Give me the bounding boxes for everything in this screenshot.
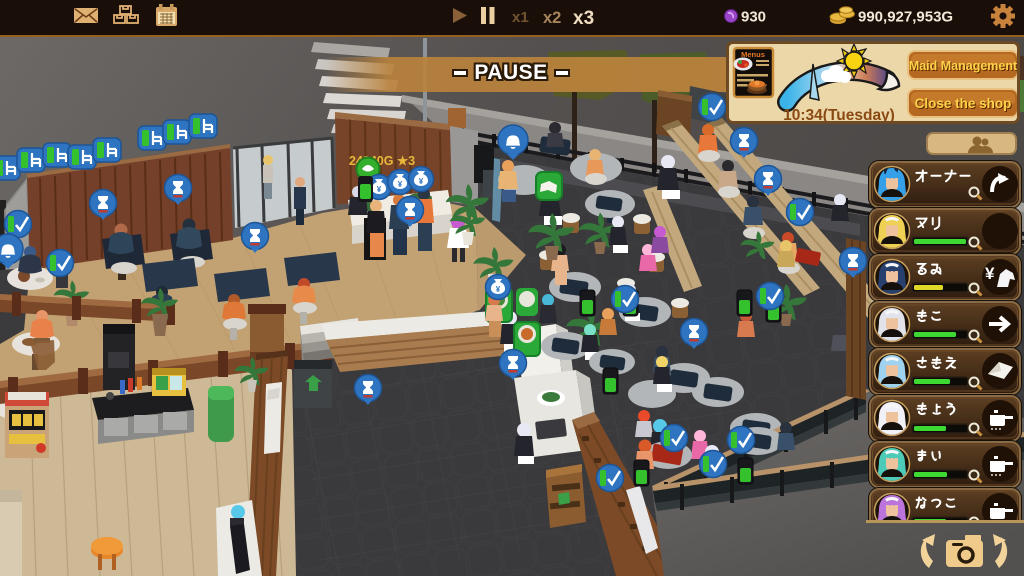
- svg-text:x2: x2: [543, 9, 561, 27]
- svg-text:930: 930: [741, 9, 766, 26]
- svg-text:¥: ¥: [985, 264, 995, 283]
- svg-text:Close the shop: Close the shop: [915, 96, 1012, 111]
- svg-text:Maid Management: Maid Management: [909, 59, 1017, 73]
- svg-text:10:34(Tuesday): 10:34(Tuesday): [783, 107, 895, 121]
- svg-text:x1: x1: [512, 9, 529, 26]
- svg-text:x3: x3: [573, 8, 594, 29]
- svg-text:990,927,953G: 990,927,953G: [858, 9, 953, 26]
